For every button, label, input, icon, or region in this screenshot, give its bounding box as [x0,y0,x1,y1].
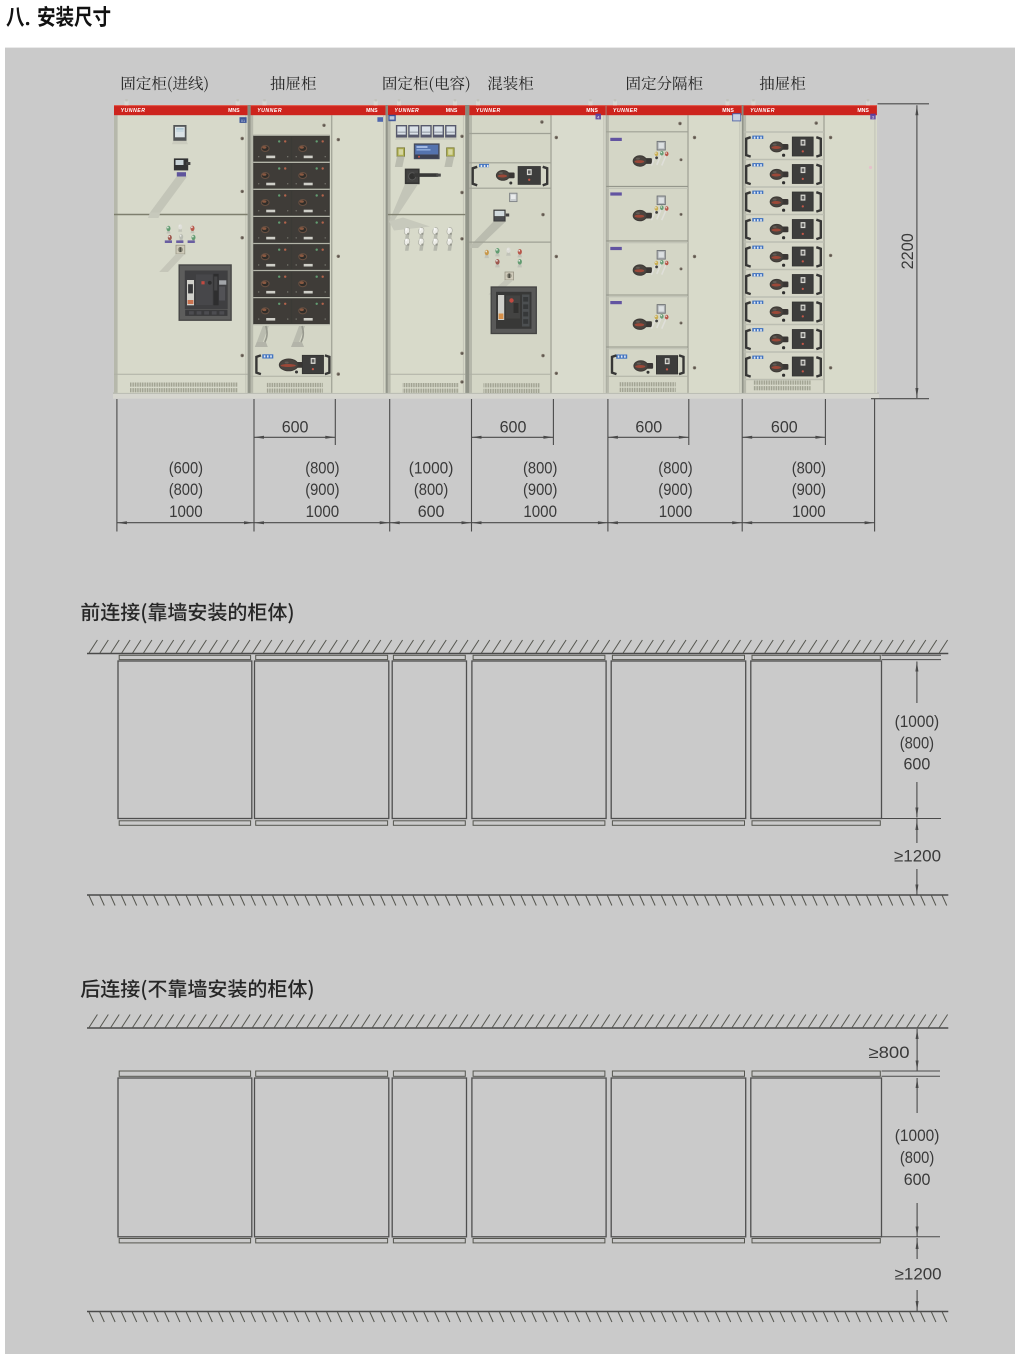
svg-text:(900): (900) [523,481,557,499]
svg-text:1000: 1000 [306,503,340,521]
svg-text:YUNNER: YUNNER [613,108,638,114]
svg-text:MNS: MNS [857,108,869,114]
svg-text:600: 600 [500,419,527,437]
svg-text:1000: 1000 [523,503,557,521]
svg-text:(800): (800) [305,459,339,477]
svg-text:YUNNER: YUNNER [257,108,282,114]
svg-text:600: 600 [904,1171,931,1189]
svg-text:MNS: MNS [228,108,240,114]
svg-text:600: 600 [771,419,798,437]
svg-text:MNS: MNS [586,108,598,114]
svg-text:(800): (800) [169,481,203,499]
svg-text:YUNNER: YUNNER [750,108,775,114]
svg-text:≥1200: ≥1200 [894,848,941,866]
svg-text:(600): (600) [169,459,203,477]
svg-text:(800): (800) [792,459,826,477]
svg-text:(1000): (1000) [895,1127,940,1145]
svg-text:(900): (900) [658,481,692,499]
svg-text:(800): (800) [523,459,557,477]
svg-text:YUNNER: YUNNER [476,108,501,114]
svg-text:(800): (800) [900,1149,934,1167]
svg-text:600: 600 [418,503,445,521]
svg-text:≥1200: ≥1200 [895,1266,942,1284]
svg-text:1000: 1000 [659,503,693,521]
svg-text:MNS: MNS [722,108,734,114]
svg-text:(800): (800) [900,734,934,752]
svg-text:≥800: ≥800 [869,1044,910,1062]
svg-text:600: 600 [904,756,931,774]
svg-text:(1000): (1000) [409,459,454,477]
svg-text:(900): (900) [792,481,826,499]
svg-text:YUNNER: YUNNER [121,108,146,114]
svg-text:(800): (800) [658,459,692,477]
svg-text:1000: 1000 [792,503,826,521]
svg-text:(1000): (1000) [895,713,940,731]
svg-text:600: 600 [282,419,309,437]
svg-text:YUNNER: YUNNER [394,108,419,114]
svg-text:(800): (800) [414,481,448,499]
svg-text:(900): (900) [305,481,339,499]
svg-text:600: 600 [635,419,662,437]
svg-text:1000: 1000 [169,503,203,521]
svg-text:MNS: MNS [446,108,458,114]
svg-text:MNS: MNS [366,108,378,114]
svg-text:2200: 2200 [899,233,917,269]
